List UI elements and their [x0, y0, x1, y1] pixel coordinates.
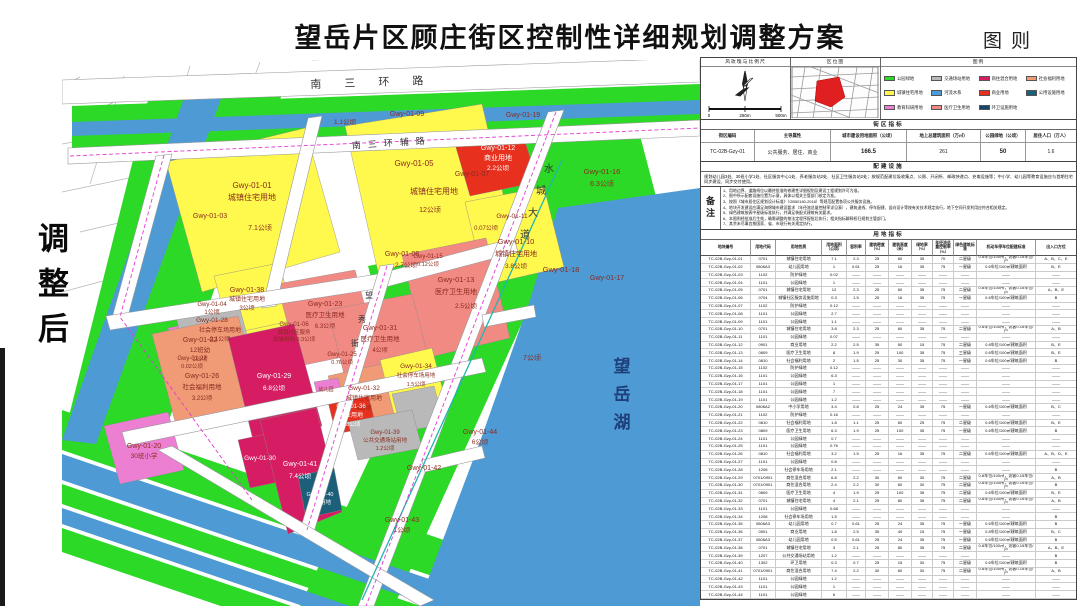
land-table-cell: 0.3: [822, 560, 847, 568]
land-table-cell: 1.9: [847, 349, 866, 357]
land-table-cell: 75: [933, 427, 954, 435]
block-indicator-header: 居住人口（万人）: [1026, 130, 1076, 143]
land-table-cell: ——: [866, 388, 889, 396]
land-table-cell: ——: [847, 365, 866, 373]
land-table-cell: ——: [954, 513, 977, 521]
land-table-cell: 60: [889, 287, 912, 295]
land-table-cell: A、B: [1036, 326, 1076, 334]
land-table-cell: ——: [933, 513, 954, 521]
map-label: 社会停车场用地: [397, 371, 436, 379]
map-label: 环卫用地: [309, 498, 332, 506]
map-label: Gwy-01-09: [390, 111, 424, 118]
land-table-cell: 1.2: [822, 396, 847, 404]
land-table-cell: 0806A3: [751, 264, 776, 272]
land-table-cell: 25: [866, 451, 889, 459]
map-label: 6.8公顷: [263, 384, 286, 392]
land-table-cell: 商住混合用地: [776, 482, 822, 490]
legend-label: 公用设施用地: [1039, 90, 1065, 96]
land-table-cell: ——: [1036, 459, 1076, 467]
land-table-cell: 0.6车位/100㎡建筑面积: [977, 349, 1036, 357]
land-table-cell: ——: [847, 272, 866, 280]
land-table-cell: ——: [889, 388, 912, 396]
land-table-cell: ——: [954, 459, 977, 467]
location-map-header: 区位图: [791, 58, 880, 67]
land-table-cell: 0809: [751, 490, 776, 498]
land-table-cell: 0.8车位/100㎡，访客0.15车位/户: [977, 482, 1036, 490]
land-table-cell: ——: [866, 381, 889, 389]
land-table-cell: 35: [912, 404, 933, 412]
map-label: 公共交通场站用地: [363, 436, 408, 444]
land-table-cell: ——: [977, 373, 1036, 381]
land-table-cell: ——: [847, 513, 866, 521]
land-table-cell: 7: [822, 388, 847, 396]
map-label: Gwy-01-43: [385, 517, 419, 524]
land-table-cell: 防护绿地: [776, 272, 822, 280]
land-table-cell: 公园绿地: [776, 576, 822, 584]
land-table-cell: 1.5: [822, 513, 847, 521]
land-table-cell: 1.2: [822, 576, 847, 584]
land-table-cell: ——: [933, 396, 954, 404]
map-label: 1.5公顷: [407, 380, 426, 388]
facilities-section: 配建设施 规划幼儿园3处、30班小学1处、社区服务中心1处、养老服务站2处、社区…: [701, 162, 1076, 187]
land-table-cell: 防护绿地: [776, 303, 822, 311]
scale-tick-0: 0: [708, 113, 711, 118]
land-table-cell: 一星级: [954, 529, 977, 537]
block-indicator-value: 50: [981, 143, 1026, 161]
map-label: Gwy-01-42: [407, 465, 441, 472]
land-table-cell: ——: [977, 435, 1036, 443]
map-label: 城镇住宅用地: [228, 192, 276, 202]
land-table-cell: ——: [977, 576, 1036, 584]
sheet-type-label: 图则: [983, 26, 1039, 53]
land-table-cell: TC-02B-Gzy-01-42: [701, 576, 751, 584]
land-table-cell: ——: [933, 459, 954, 467]
land-table-cell: ——: [977, 388, 1036, 396]
land-table-cell: 35: [912, 451, 933, 459]
map-label: 0.12公顷: [417, 260, 439, 268]
legend-swatch: [1026, 90, 1037, 96]
block-indicators-section: 街区指标 街区编码主导属性城市建设用地面积（公顷）地上总建筑面积（万㎡）公园绿地…: [701, 120, 1076, 162]
map-label: 大: [528, 206, 538, 219]
land-table-cell: 30: [866, 568, 889, 576]
block-indicator-header: 街区编码: [701, 130, 755, 143]
land-table-cell: 80: [889, 498, 912, 506]
legend-swatch: [931, 90, 942, 96]
land-table-cell: 0.6车位/100㎡建筑面积: [977, 537, 1036, 545]
legend-swatch: [884, 105, 895, 111]
land-use-table-rows: TC-02B-Gzy-01-010701城镇住宅用地7.12.325603570…: [701, 256, 1076, 599]
land-table-cell: 50: [889, 342, 912, 350]
land-table-cell: 25: [866, 287, 889, 295]
legend-label: 商业用地: [992, 90, 1009, 96]
land-table-cell: 0.68: [822, 505, 847, 513]
land-table-cell: ——: [933, 272, 954, 280]
land-table-cell: 75: [933, 560, 954, 568]
legend-item: 社会福利用地: [1026, 76, 1073, 82]
land-table-cell: 0.76: [822, 443, 847, 451]
land-table-cell: 35: [912, 521, 933, 529]
land-table-cell: 25: [866, 490, 889, 498]
land-table-cell: ——: [954, 310, 977, 318]
land-table-cell: 75: [933, 568, 954, 576]
land-table-cell: 二星级: [954, 287, 977, 295]
land-table-cell: 城镇住宅用地: [776, 326, 822, 334]
land-table-cell: ——: [889, 381, 912, 389]
land-table-cell: B、E: [1036, 420, 1076, 428]
land-table-cell: ——: [933, 591, 954, 599]
land-table-cell: TC-02B-Gzy-01-04: [701, 279, 751, 287]
land-table-cell: TC-02B-Gzy-01-24: [701, 435, 751, 443]
land-table-cell: ——: [912, 513, 933, 521]
land-table-cell: 三星级: [954, 349, 977, 357]
land-table-cell: ——: [866, 583, 889, 591]
land-table-cell: 幼儿园用地: [776, 521, 822, 529]
land-table-cell: 一星级: [954, 537, 977, 545]
land-table-cell: 15: [912, 529, 933, 537]
land-table-cell: 幼儿园用地: [776, 537, 822, 545]
land-table-cell: 商住混合用地: [776, 474, 822, 482]
land-table-cell: 1101: [751, 373, 776, 381]
legend-swatch: [884, 76, 895, 82]
land-table-cell: 75: [933, 521, 954, 529]
land-table-cell: ——: [933, 552, 954, 560]
legend-swatch: [979, 76, 990, 82]
land-table-cell: 35: [912, 537, 933, 545]
legend-label: 商住混合用地: [992, 76, 1018, 82]
map-label: 2.2公顷: [487, 164, 510, 172]
land-table-cell: ——: [912, 435, 933, 443]
land-table-cell: ——: [977, 365, 1036, 373]
map-label: Gwy-01-36: [336, 404, 366, 410]
land-table-cell: ——: [866, 373, 889, 381]
land-table-cell: 1101: [751, 334, 776, 342]
land-table-cell: 0.02: [822, 272, 847, 280]
land-table-cell: ——: [847, 396, 866, 404]
land-table-cell: TC-02B-Gzy-01-05: [701, 287, 751, 295]
land-use-table-section: 用地指标 地块编号用地代码用地性质用地面积（公顷）容积率建筑密度（%）建筑高度（…: [701, 230, 1076, 599]
map-label: 2.7公顷: [395, 261, 418, 269]
land-table-cell: 1101: [751, 505, 776, 513]
land-table-cell: 15: [889, 560, 912, 568]
land-table-cell: TC-02B-Gzy-01-13: [701, 349, 751, 357]
land-table-cell: ——: [912, 412, 933, 420]
land-table-cell: TC-02B-Gzy-01-23: [701, 427, 751, 435]
land-table-cell: 6.3: [822, 373, 847, 381]
land-table-cell: ——: [847, 552, 866, 560]
land-table-cell: ——: [889, 513, 912, 521]
land-table-cell: 1: [822, 279, 847, 287]
map-label: 1公顷: [394, 526, 411, 534]
land-table-cell: B: [1036, 482, 1076, 490]
land-table-cell: 2.5: [847, 529, 866, 537]
land-table-cell: 0809: [751, 349, 776, 357]
land-table-cell: ——: [912, 591, 933, 599]
planning-map: Gwy-01-01城镇住宅用地Gwy-01-037.1公顷Gwy-01-091.…: [62, 60, 707, 606]
legend-item: 公园绿地: [884, 76, 931, 82]
land-table-cell: 公园绿地: [776, 381, 822, 389]
land-table-cell: ——: [954, 466, 977, 474]
land-table-cell: 25: [866, 264, 889, 272]
legend-label: 城镇住宅用地: [897, 90, 923, 96]
map-label: 街: [351, 338, 359, 348]
land-table-cell: 0810: [751, 420, 776, 428]
land-table-cell: 城镇住宅用地: [776, 498, 822, 506]
land-table-cell: 社会福利用地: [776, 420, 822, 428]
land-table-cell: TC-02B-Gzy-01-37: [701, 537, 751, 545]
legend-label: 交通场站用地: [944, 76, 970, 82]
land-table-cell: ——: [866, 466, 889, 474]
land-table-cell: 30: [912, 568, 933, 576]
map-label: Gwy-01-06: [279, 322, 309, 328]
scale-tick-2: 500m: [775, 113, 787, 118]
legend-item: 教育科研用地: [884, 105, 931, 111]
land-table-cell: 社会福利用地: [776, 357, 822, 365]
land-table-cell: TC-02B-Gzy-01-35: [701, 521, 751, 529]
land-table-cell: 75: [933, 264, 954, 272]
land-table-cell: 1101: [751, 435, 776, 443]
land-table-cell: ——: [933, 505, 954, 513]
land-table-cell: 一星级: [954, 521, 977, 529]
land-table-cell: 二星级: [954, 568, 977, 576]
map-label: 道: [520, 228, 530, 241]
land-table-cell: 二星级: [954, 498, 977, 506]
land-table-cell: TC-02B-Gzy-01-16: [701, 373, 751, 381]
land-table-cell: ——: [977, 505, 1036, 513]
land-table-cell: 75: [933, 474, 954, 482]
land-table-cell: TC-02B-Gzy-01-26: [701, 451, 751, 459]
land-table-cell: 2.7: [822, 310, 847, 318]
land-table-cell: ——: [866, 303, 889, 311]
land-table-cell: 60: [889, 256, 912, 264]
land-table-cell: ——: [847, 381, 866, 389]
map-label: Gwy-01-28: [196, 317, 228, 324]
map-label: 城镇社区服务: [277, 328, 311, 336]
map-label: 30班小学: [131, 451, 158, 460]
land-table-cell: 2.2: [847, 568, 866, 576]
land-table-cell: 公园绿地: [776, 443, 822, 451]
land-table-cell: 1.1: [847, 420, 866, 428]
block-indicator-value: 公共服务、居住、商业: [755, 143, 831, 161]
map-label: Gwy-01-27: [177, 356, 207, 362]
land-table-cell: ——: [933, 279, 954, 287]
land-table-cell: ——: [954, 552, 977, 560]
land-table-cell: TC-02B-Gzy-01-31: [701, 490, 751, 498]
land-table-cell: 0810: [751, 357, 776, 365]
land-table-cell: ——: [912, 303, 933, 311]
land-table-cell: ——: [847, 412, 866, 420]
land-table-cell: ——: [912, 373, 933, 381]
land-table-cell: 0.8车位/100㎡，访客0.15车位/户: [977, 326, 1036, 334]
legend-swatch: [931, 76, 942, 82]
map-label: Gwy-01-44: [463, 429, 497, 436]
land-table-cell: ——: [933, 373, 954, 381]
land-table-cell: ——: [977, 310, 1036, 318]
land-table-cell: ——: [866, 412, 889, 420]
land-table-cell: 0701: [751, 544, 776, 552]
windrose-cell: 风玫瑰与比例尺 0 250m 500m: [701, 58, 791, 119]
land-table-cell: 4: [822, 498, 847, 506]
land-table-header: 建筑高度（米）: [889, 240, 912, 256]
land-table-cell: 35: [912, 357, 933, 365]
land-table-cell: ——: [912, 552, 933, 560]
legend-label: 医疗卫生用地: [944, 105, 970, 111]
land-table-cell: 0.61: [847, 521, 866, 529]
map-label: 1.2公顷: [376, 444, 395, 452]
land-table-cell: ——: [866, 279, 889, 287]
land-table-cell: ——: [889, 310, 912, 318]
land-table-cell: 0.6车位/100㎡建筑面积: [977, 357, 1036, 365]
land-table-cell: 二星级: [954, 560, 977, 568]
map-label: 0.02公顷: [181, 362, 203, 370]
land-table-cell: 75: [933, 326, 954, 334]
land-table-cell: TC-02B-Gzy-01-40: [701, 560, 751, 568]
land-table-cell: TC-02B-Gzy-01-12: [701, 342, 751, 350]
block-indicator-header: 城市建设用地面积（公顷）: [831, 130, 907, 143]
land-table-cell: TC-02B-Gzy-01-29: [701, 474, 751, 482]
land-table-cell: B、E: [1036, 349, 1076, 357]
map-label: Gwy-01-25: [327, 352, 357, 358]
land-table-cell: TC-02B-Gzy-01-21: [701, 412, 751, 420]
land-table-cell: B: [1036, 521, 1076, 529]
land-table-cell: 12: [822, 287, 847, 295]
land-table-cell: TC-02B-Gzy-01-41: [701, 568, 751, 576]
land-table-cell: 1208: [751, 466, 776, 474]
land-table-cell: ——: [847, 303, 866, 311]
land-table-cell: TC-02B-Gzy-01-14: [701, 357, 751, 365]
land-table-cell: ——: [866, 396, 889, 404]
land-table-cell: ——: [866, 459, 889, 467]
land-table-cell: 0810: [751, 451, 776, 459]
land-table-cell: ——: [977, 466, 1036, 474]
land-table-cell: 0.6车位/100㎡建筑面积: [977, 427, 1036, 435]
map-label: Gwy-01-19: [506, 112, 540, 119]
land-table-cell: 35: [912, 544, 933, 552]
land-table-cell: 3.2: [822, 451, 847, 459]
land-table-cell: 0.8车位/100㎡，访客0.15车位/户: [977, 256, 1036, 264]
land-table-cell: ——: [954, 334, 977, 342]
land-table-cell: 0806A2: [751, 404, 776, 412]
land-table-cell: 0.61: [847, 264, 866, 272]
land-table-cell: 0.8车位/100㎡建筑面积: [977, 342, 1036, 350]
land-table-cell: ——: [866, 365, 889, 373]
land-table-cell: 2.2: [822, 342, 847, 350]
land-table-cell: 2.3: [847, 256, 866, 264]
land-table-cell: 0.3: [822, 295, 847, 303]
map-label: 12公顷: [419, 206, 441, 214]
land-table-cell: 公园绿地: [776, 396, 822, 404]
land-table-cell: 30: [889, 357, 912, 365]
land-table-cell: 0701: [751, 498, 776, 506]
land-table-cell: 24: [889, 404, 912, 412]
land-table-cell: ——: [977, 334, 1036, 342]
map-label: 1.8公顷: [342, 420, 361, 428]
land-table-cell: ——: [1036, 381, 1076, 389]
land-table-cell: TC-02B-Gzy-01-34: [701, 513, 751, 521]
land-table-cell: ——: [866, 513, 889, 521]
land-table-cell: 0.07: [822, 334, 847, 342]
land-table-cell: ——: [912, 576, 933, 584]
land-table-cell: 公园绿地: [776, 388, 822, 396]
land-table-cell: 社会停车场用地: [776, 466, 822, 474]
land-table-cell: ——: [977, 412, 1036, 420]
land-table-cell: 0.6车位/100㎡建筑面积: [977, 490, 1036, 498]
land-table-cell: 2.1: [822, 466, 847, 474]
land-table-cell: 1101: [751, 591, 776, 599]
land-table-cell: 0.6车位/100㎡建筑面积: [977, 560, 1036, 568]
land-table-cell: 25: [866, 560, 889, 568]
land-table-cell: ——: [847, 318, 866, 326]
land-table-cell: 0.6车位/100㎡建筑面积: [977, 420, 1036, 428]
legend-label: 环卫设施用地: [992, 105, 1018, 111]
land-table-cell: ——: [933, 318, 954, 326]
land-table-cell: 0806A3: [751, 537, 776, 545]
panel-top-strip: 风玫瑰与比例尺 0 250m 500m: [701, 58, 1076, 120]
land-table-cell: 二星级: [954, 482, 977, 490]
land-table-cell: 0.7: [847, 560, 866, 568]
block-indicator-header: 主导属性: [755, 130, 831, 143]
land-table-cell: 2.2: [847, 474, 866, 482]
map-label: 城镇住宅用地: [229, 295, 265, 303]
land-table-cell: B: [1036, 537, 1076, 545]
map-label: 12班幼: [190, 345, 210, 354]
land-table-cell: 100: [889, 427, 912, 435]
map-label: Gwy-01-32: [348, 385, 380, 392]
land-table-cell: 2.1: [847, 544, 866, 552]
map-label: 城镇住宅用地: [346, 394, 382, 402]
location-map: [791, 67, 879, 118]
legend-label: 河流水系: [944, 90, 961, 96]
land-table-cell: 1: [822, 264, 847, 272]
land-table-cell: 二星级: [954, 420, 977, 428]
land-table-cell: 2.2: [847, 482, 866, 490]
land-table-cell: TC-02B-Gzy-01-32: [701, 498, 751, 506]
land-table-cell: 商住混合用地: [776, 568, 822, 576]
land-table-cell: B、C: [1036, 404, 1076, 412]
land-table-cell: TC-02B-Gzy-01-36: [701, 529, 751, 537]
land-table-cell: ——: [866, 591, 889, 599]
land-table-cell: 16: [889, 451, 912, 459]
land-table-cell: 1102: [751, 272, 776, 280]
land-table-cell: B、E: [1036, 342, 1076, 350]
land-table-cell: ——: [954, 388, 977, 396]
land-table-cell: TC-02B-Gzy-01-17: [701, 381, 751, 389]
land-table-cell: 25: [866, 427, 889, 435]
legend-item: 河流水系: [931, 90, 978, 96]
land-table-cell: 1101: [751, 310, 776, 318]
land-table-cell: ——: [912, 505, 933, 513]
land-table-cell: ——: [977, 279, 1036, 287]
land-table-cell: 25: [912, 420, 933, 428]
map-label: Gwy-01-11: [496, 213, 528, 220]
land-table-cell: 防护绿地: [776, 412, 822, 420]
land-table-cell: TC-02B-Gzy-01-44: [701, 591, 751, 599]
land-table-cell: 公园绿地: [776, 310, 822, 318]
land-table-cell: ——: [912, 381, 933, 389]
land-table-header: 绿色建筑标准: [954, 240, 977, 256]
land-table-cell: 2.3: [847, 287, 866, 295]
land-table-cell: 二星级: [954, 451, 977, 459]
map-label: 医疗卫生用地: [306, 310, 346, 319]
map-label: Gwy-01-26: [185, 373, 219, 380]
land-table-cell: ——: [954, 591, 977, 599]
land-table-cell: 医疗卫生用地: [776, 490, 822, 498]
land-table-cell: ——: [1036, 373, 1076, 381]
land-table-cell: 0.6车位/100㎡建筑面积: [977, 451, 1036, 459]
land-table-cell: 1.2: [822, 552, 847, 560]
land-table-cell: ——: [847, 443, 866, 451]
land-table-cell: 1302: [751, 560, 776, 568]
land-table-cell: 25: [866, 256, 889, 264]
